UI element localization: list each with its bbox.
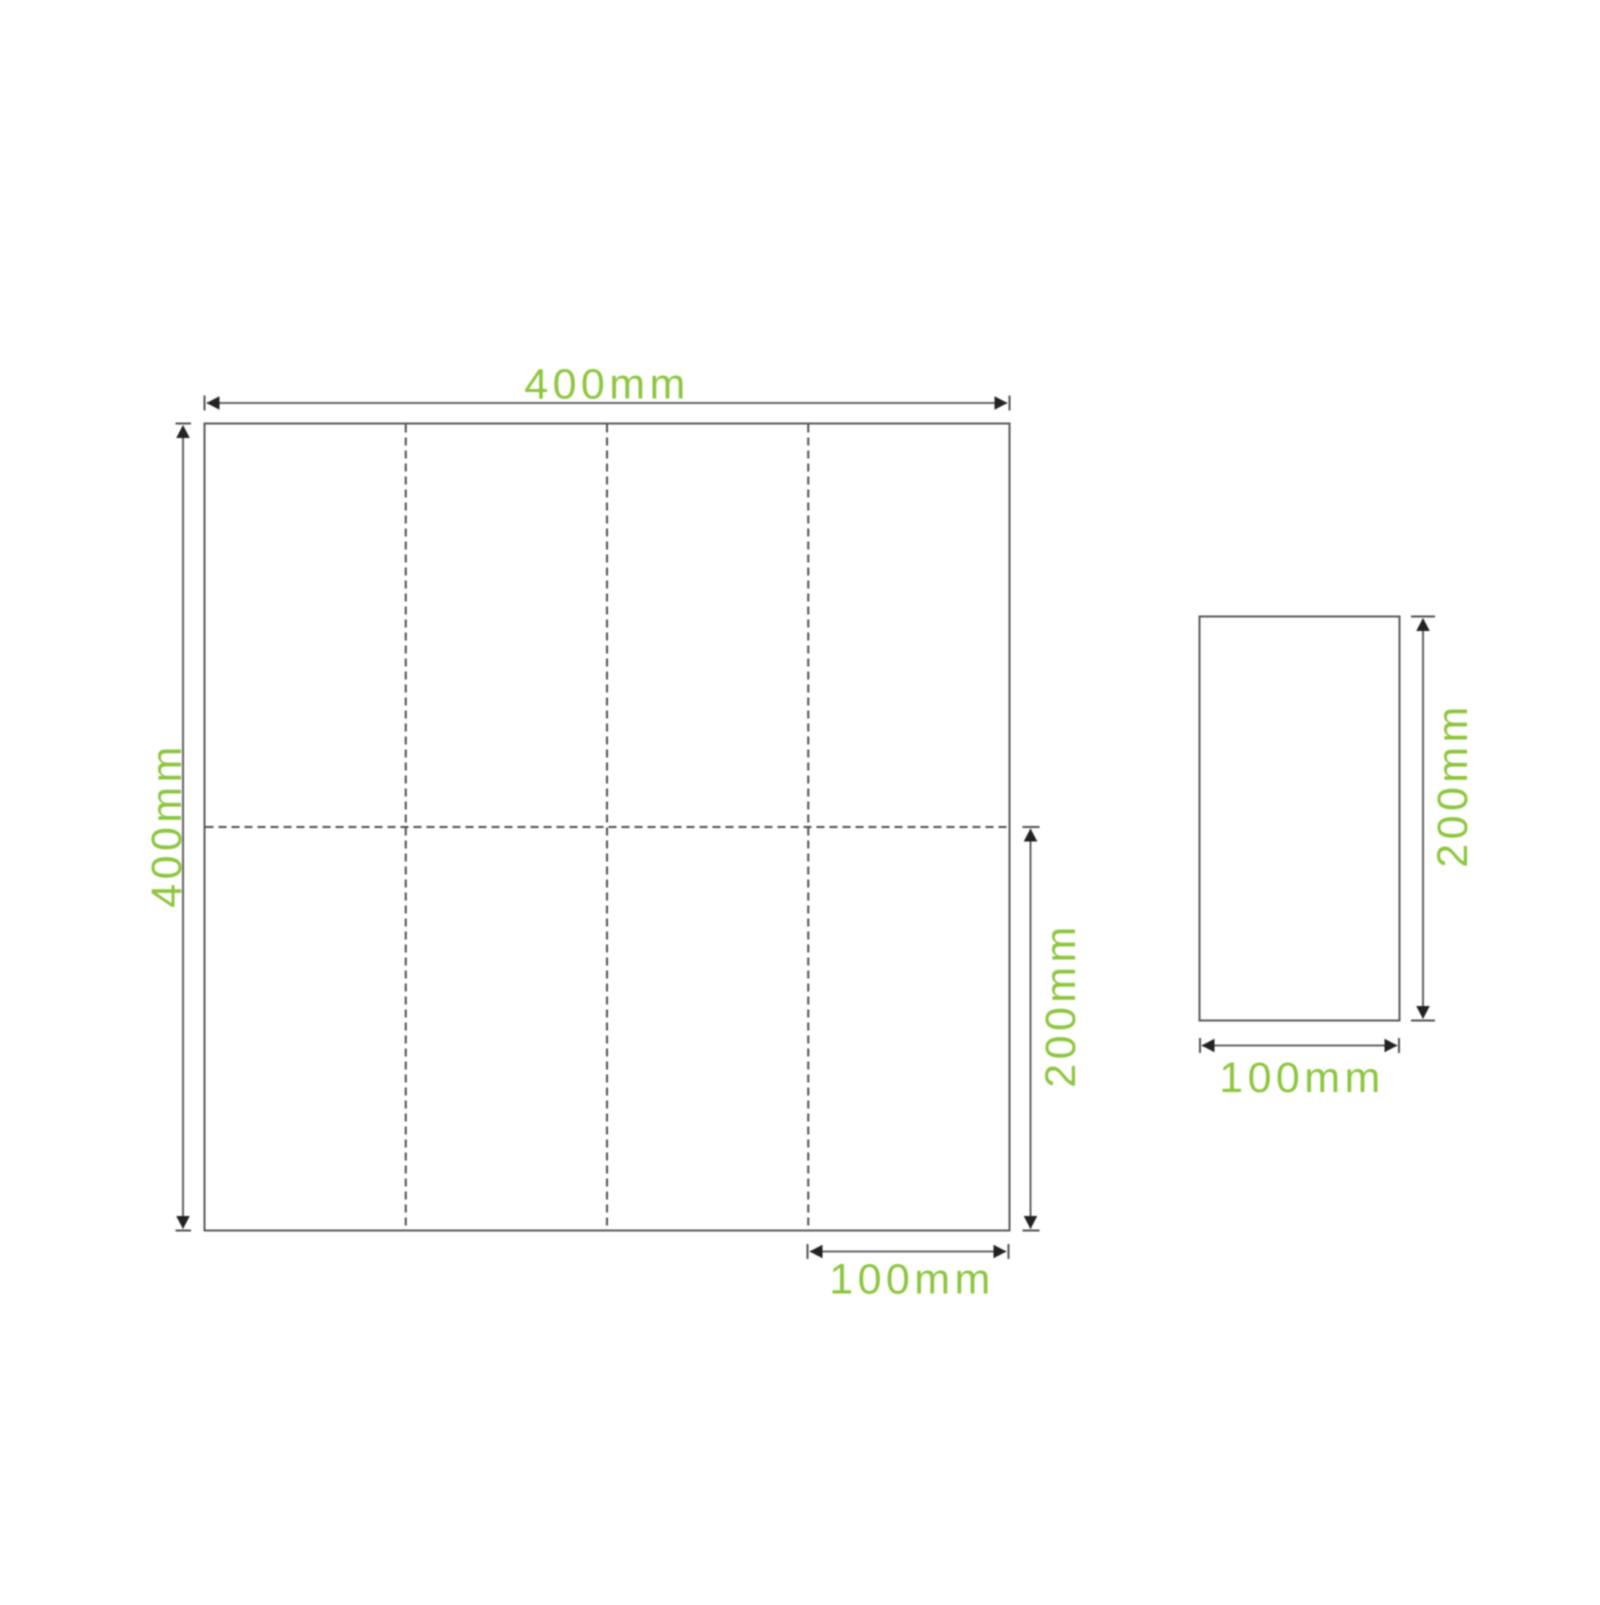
svg-text:100mm: 100mm: [829, 1256, 994, 1304]
svg-text:400mm: 400mm: [143, 742, 191, 907]
svg-text:200mm: 200mm: [1429, 702, 1477, 867]
svg-text:100mm: 100mm: [1219, 1054, 1384, 1102]
svg-text:200mm: 200mm: [1037, 922, 1085, 1087]
svg-text:400mm: 400mm: [524, 361, 689, 409]
